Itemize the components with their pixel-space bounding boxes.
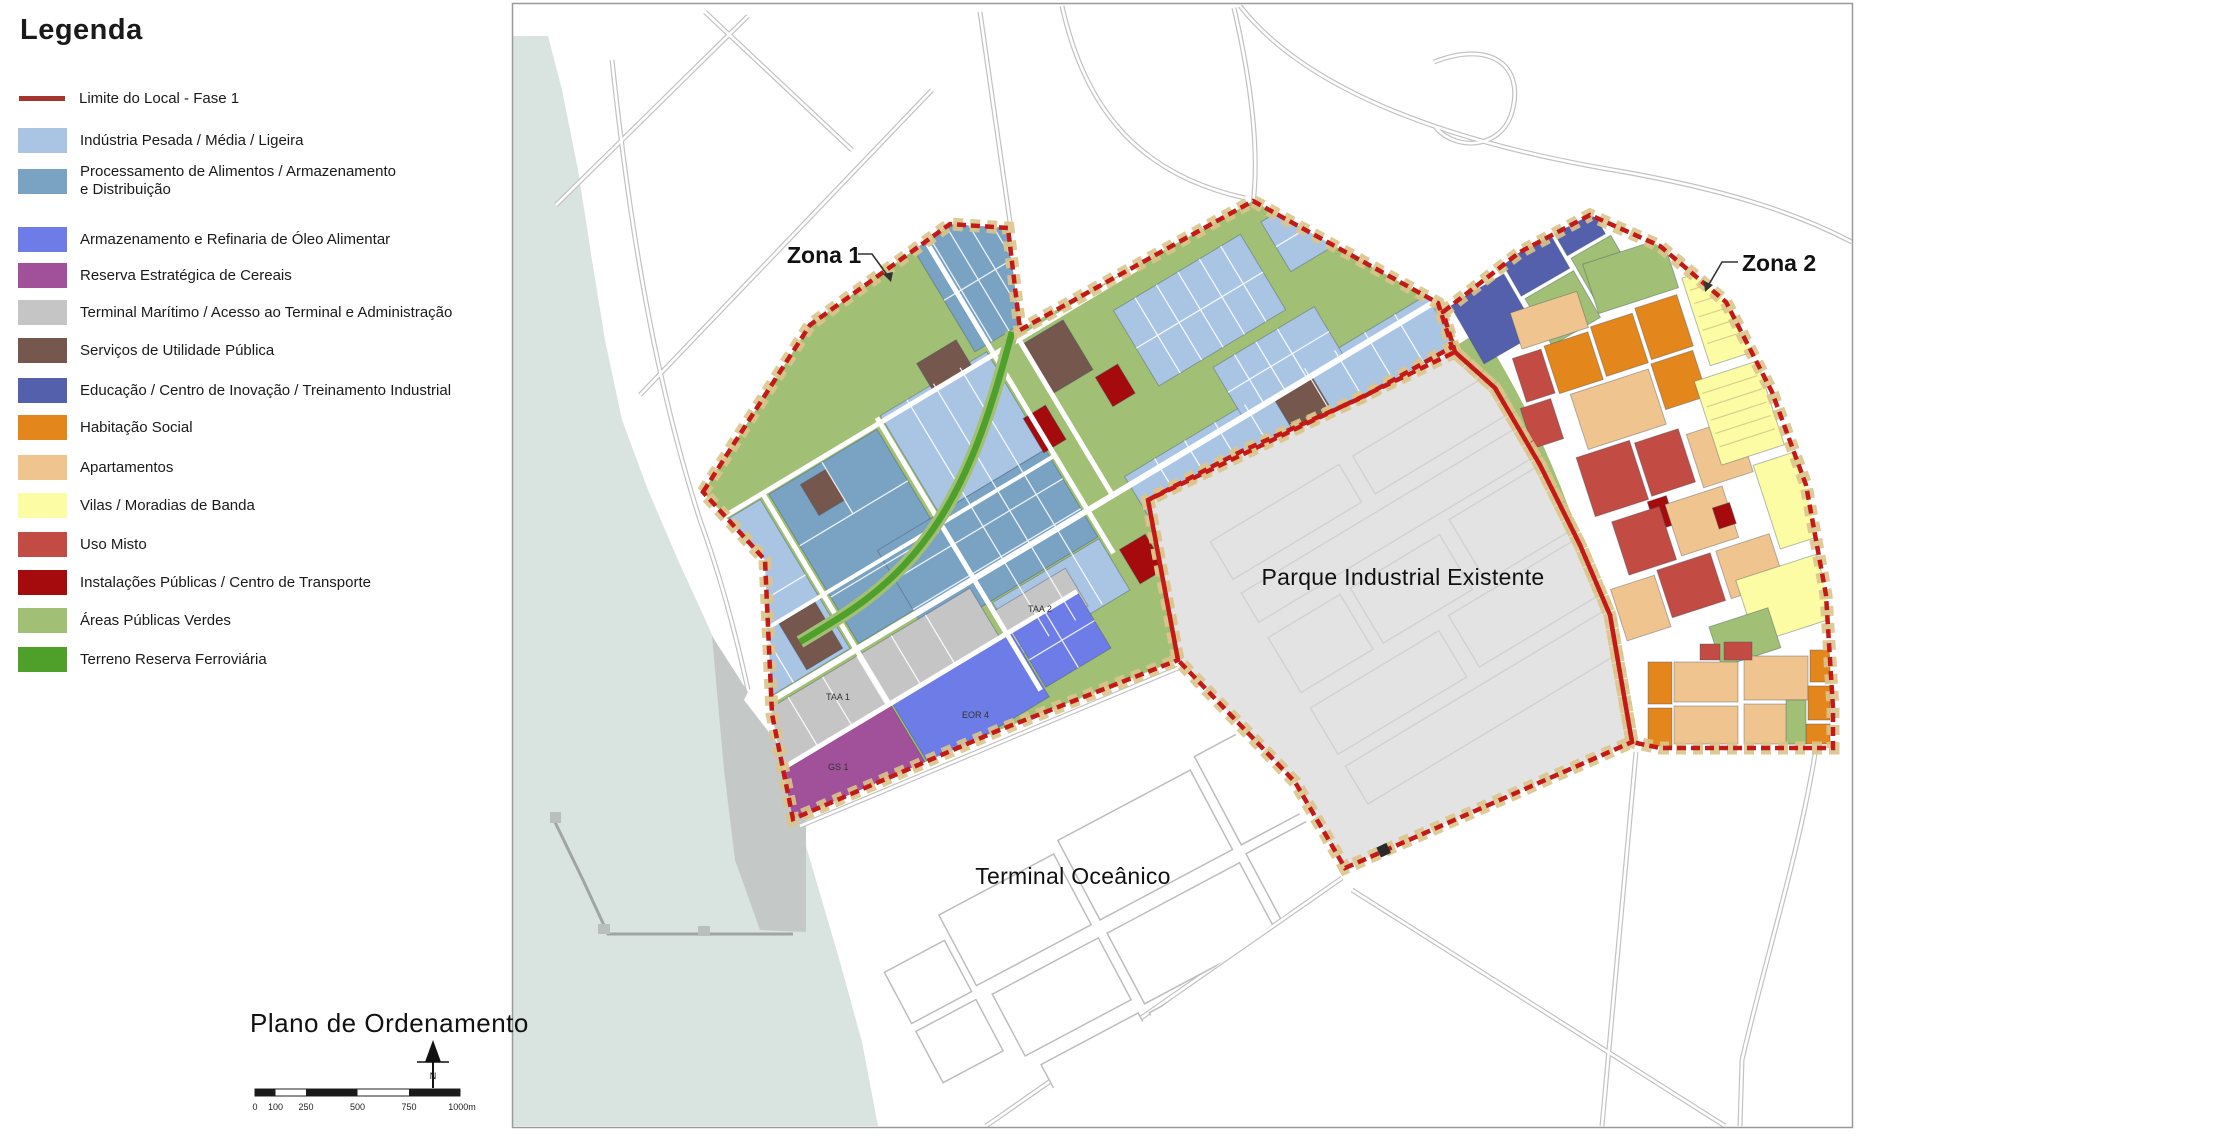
color-swatch xyxy=(18,570,67,595)
legend-item-label: Habitação Social xyxy=(80,419,510,437)
scale-tick-750: 750 xyxy=(401,1102,416,1112)
color-swatch xyxy=(18,338,67,363)
legend-item-label: Reserva Estratégica de Cereais xyxy=(80,267,510,285)
legend-item-label: Limite do Local - Fase 1 xyxy=(79,90,509,108)
legend-item: Reserva Estratégica de Cereais xyxy=(18,263,510,288)
eor4-label: EOR 4 xyxy=(962,710,989,720)
scale-tick-250: 250 xyxy=(298,1102,313,1112)
north-arrow: N xyxy=(417,1040,449,1088)
scale-tick-1000: 1000m xyxy=(448,1102,476,1112)
legend-item-label: Processamento de Alimentos / Armazenamen… xyxy=(80,163,400,199)
breakwater-head xyxy=(550,812,561,823)
zona2-label: Zona 2 xyxy=(1742,250,1816,276)
color-swatch xyxy=(18,608,67,633)
legend-item-label: Armazenamento e Refinaria de Óleo Alimen… xyxy=(80,231,510,249)
legend-item-label: Apartamentos xyxy=(80,459,510,477)
limit-line-swatch xyxy=(19,96,65,101)
legend-item-label: Educação / Centro de Inovação / Treiname… xyxy=(80,382,510,400)
scale-tick-0: 0 xyxy=(252,1102,257,1112)
legend-item: Armazenamento e Refinaria de Óleo Alimen… xyxy=(18,227,510,252)
scale-tick-100: 100 xyxy=(268,1102,283,1112)
terminal-oceanico-label: Terminal Oceânico xyxy=(975,863,1171,889)
zona1-label: Zona 1 xyxy=(787,242,861,268)
legend-item-label: Uso Misto xyxy=(80,536,510,554)
legend-title: Legenda xyxy=(20,14,143,47)
color-swatch xyxy=(18,532,67,557)
legend-item: Educação / Centro de Inovação / Treiname… xyxy=(18,378,510,403)
legend-item: Vilas / Moradias de Banda xyxy=(18,493,510,518)
legend-item: Indústria Pesada / Média / Ligeira xyxy=(18,128,510,153)
legend-panel: Legenda Limite do Local - Fase 1 Indústr… xyxy=(18,0,498,720)
legend-item: Processamento de Alimentos / Armazenamen… xyxy=(18,163,400,199)
legend-item: Apartamentos xyxy=(18,455,510,480)
legend-item: Habitação Social xyxy=(18,415,510,440)
legend-item: Instalações Públicas / Centro de Transpo… xyxy=(18,570,510,595)
color-swatch xyxy=(18,493,67,518)
legend-item: Serviços de Utilidade Pública xyxy=(18,338,510,363)
color-swatch xyxy=(18,128,67,153)
gs1-label: GS 1 xyxy=(828,762,849,772)
plan-sheet: TAA 1 TAA 2 GS 1 EOR 4 xyxy=(0,0,2220,1145)
scale-bar: 0 100 250 500 750 1000m xyxy=(252,1089,475,1112)
color-swatch xyxy=(18,378,67,403)
legend-item: Áreas Públicas Verdes xyxy=(18,608,510,633)
taa1-label: TAA 1 xyxy=(826,692,850,702)
legend-item-label: Instalações Públicas / Centro de Transpo… xyxy=(80,574,510,592)
legend-item-label: Terminal Marítimo / Acesso ao Terminal e… xyxy=(80,304,510,322)
pier-dolphin xyxy=(598,924,610,934)
north-letter: N xyxy=(430,1071,437,1081)
legend-item: Terminal Marítimo / Acesso ao Terminal e… xyxy=(18,300,510,325)
legend-item: Uso Misto xyxy=(18,532,510,557)
color-swatch xyxy=(18,169,67,194)
legend-item: Terreno Reserva Ferroviária xyxy=(18,647,510,672)
color-swatch xyxy=(18,455,67,480)
taa2-label: TAA 2 xyxy=(1028,604,1052,614)
color-swatch xyxy=(18,300,67,325)
plan-title: Plano de Ordenamento xyxy=(250,1008,529,1038)
map-footer: Plano de Ordenamento N 0 100 250 500 750… xyxy=(250,1008,529,1112)
legend-item: Limite do Local - Fase 1 xyxy=(18,86,509,111)
parque-label: Parque Industrial Existente xyxy=(1262,564,1545,590)
color-swatch xyxy=(18,227,67,252)
pier-dolphin xyxy=(698,926,710,936)
legend-item-label: Indústria Pesada / Média / Ligeira xyxy=(80,132,510,150)
color-swatch xyxy=(18,415,67,440)
scale-tick-500: 500 xyxy=(350,1102,365,1112)
legend-item-label: Serviços de Utilidade Pública xyxy=(80,342,510,360)
color-swatch xyxy=(18,263,67,288)
color-swatch xyxy=(18,647,67,672)
legend-item-label: Vilas / Moradias de Banda xyxy=(80,497,510,515)
legend-item-label: Áreas Públicas Verdes xyxy=(80,612,510,630)
legend-item-label: Terreno Reserva Ferroviária xyxy=(80,651,510,669)
